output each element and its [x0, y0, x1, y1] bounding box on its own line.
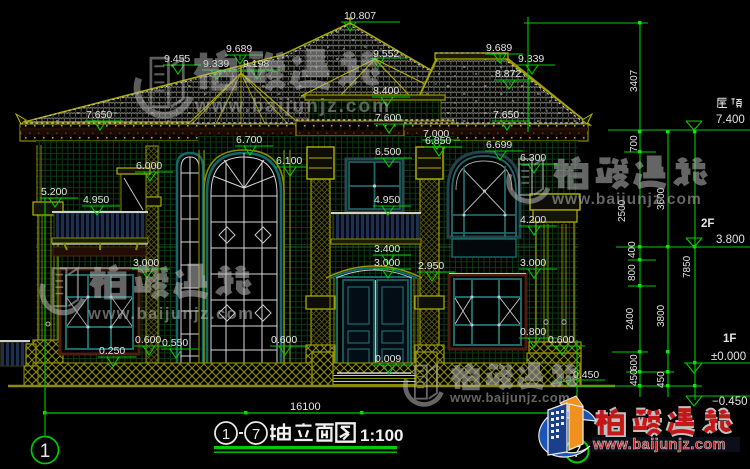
svg-text:1:100: 1:100: [360, 426, 403, 445]
svg-text:3407: 3407: [629, 69, 640, 92]
svg-text:0.600: 0.600: [548, 334, 574, 346]
svg-text:7850: 7850: [682, 255, 693, 278]
svg-text:3.800: 3.800: [716, 234, 745, 246]
svg-text:www.baijunjz.com: www.baijunjz.com: [551, 191, 702, 208]
svg-text:4.200: 4.200: [520, 214, 546, 226]
svg-text:5.200: 5.200: [41, 186, 67, 198]
svg-text:3800: 3800: [656, 304, 667, 327]
svg-text:6.100: 6.100: [276, 155, 302, 167]
svg-text:3.000: 3.000: [520, 257, 546, 269]
svg-text:7: 7: [252, 426, 260, 443]
svg-text:450: 450: [656, 371, 667, 388]
svg-text:800: 800: [627, 264, 638, 281]
svg-text:9.339: 9.339: [518, 53, 544, 65]
svg-text:3.000: 3.000: [374, 257, 400, 269]
svg-text:450: 450: [629, 369, 640, 386]
svg-text:www.baijunjz.com: www.baijunjz.com: [194, 96, 391, 117]
svg-text:0.250: 0.250: [99, 345, 125, 357]
svg-text:8.872: 8.872: [495, 68, 521, 80]
svg-text:0.800: 0.800: [520, 326, 546, 338]
svg-text:0.600: 0.600: [135, 334, 161, 346]
svg-text:10.807: 10.807: [344, 10, 376, 22]
svg-text:6.000: 6.000: [136, 160, 162, 172]
svg-text:www.baijunjz.com: www.baijunjz.com: [449, 390, 570, 405]
svg-text:1F: 1F: [723, 333, 736, 345]
svg-text:2F: 2F: [701, 218, 714, 230]
svg-text:6.850: 6.850: [425, 135, 451, 147]
svg-text:9.689: 9.689: [226, 43, 252, 55]
svg-text:2400: 2400: [625, 307, 636, 330]
svg-text:700: 700: [629, 135, 640, 152]
svg-text:±0.000: ±0.000: [711, 351, 746, 363]
svg-text:7.400: 7.400: [716, 114, 745, 126]
svg-text:16100: 16100: [290, 401, 321, 413]
svg-text:4.950: 4.950: [374, 194, 400, 206]
svg-text:2.950: 2.950: [418, 260, 444, 272]
svg-text:www.baijunjz.com: www.baijunjz.com: [592, 437, 726, 453]
svg-text:4.950: 4.950: [83, 194, 109, 206]
svg-text:0.009: 0.009: [375, 353, 401, 365]
svg-text:9.689: 9.689: [486, 42, 512, 54]
svg-text:400: 400: [627, 241, 638, 258]
svg-text:6.700: 6.700: [236, 134, 262, 146]
svg-text:7.650: 7.650: [86, 109, 112, 121]
svg-text:0.600: 0.600: [271, 334, 297, 346]
svg-text:0.550: 0.550: [162, 337, 188, 349]
svg-text:6.699: 6.699: [486, 139, 512, 151]
svg-text:6.500: 6.500: [375, 146, 401, 158]
svg-text:3.400: 3.400: [374, 243, 400, 255]
svg-text:600: 600: [629, 354, 640, 371]
svg-text:1: 1: [222, 426, 230, 443]
svg-text:−0.450: −0.450: [712, 396, 748, 408]
svg-text:1: 1: [40, 441, 51, 462]
svg-text:www.baijunjz.com: www.baijunjz.com: [87, 305, 254, 323]
svg-text:7.650: 7.650: [493, 109, 519, 121]
